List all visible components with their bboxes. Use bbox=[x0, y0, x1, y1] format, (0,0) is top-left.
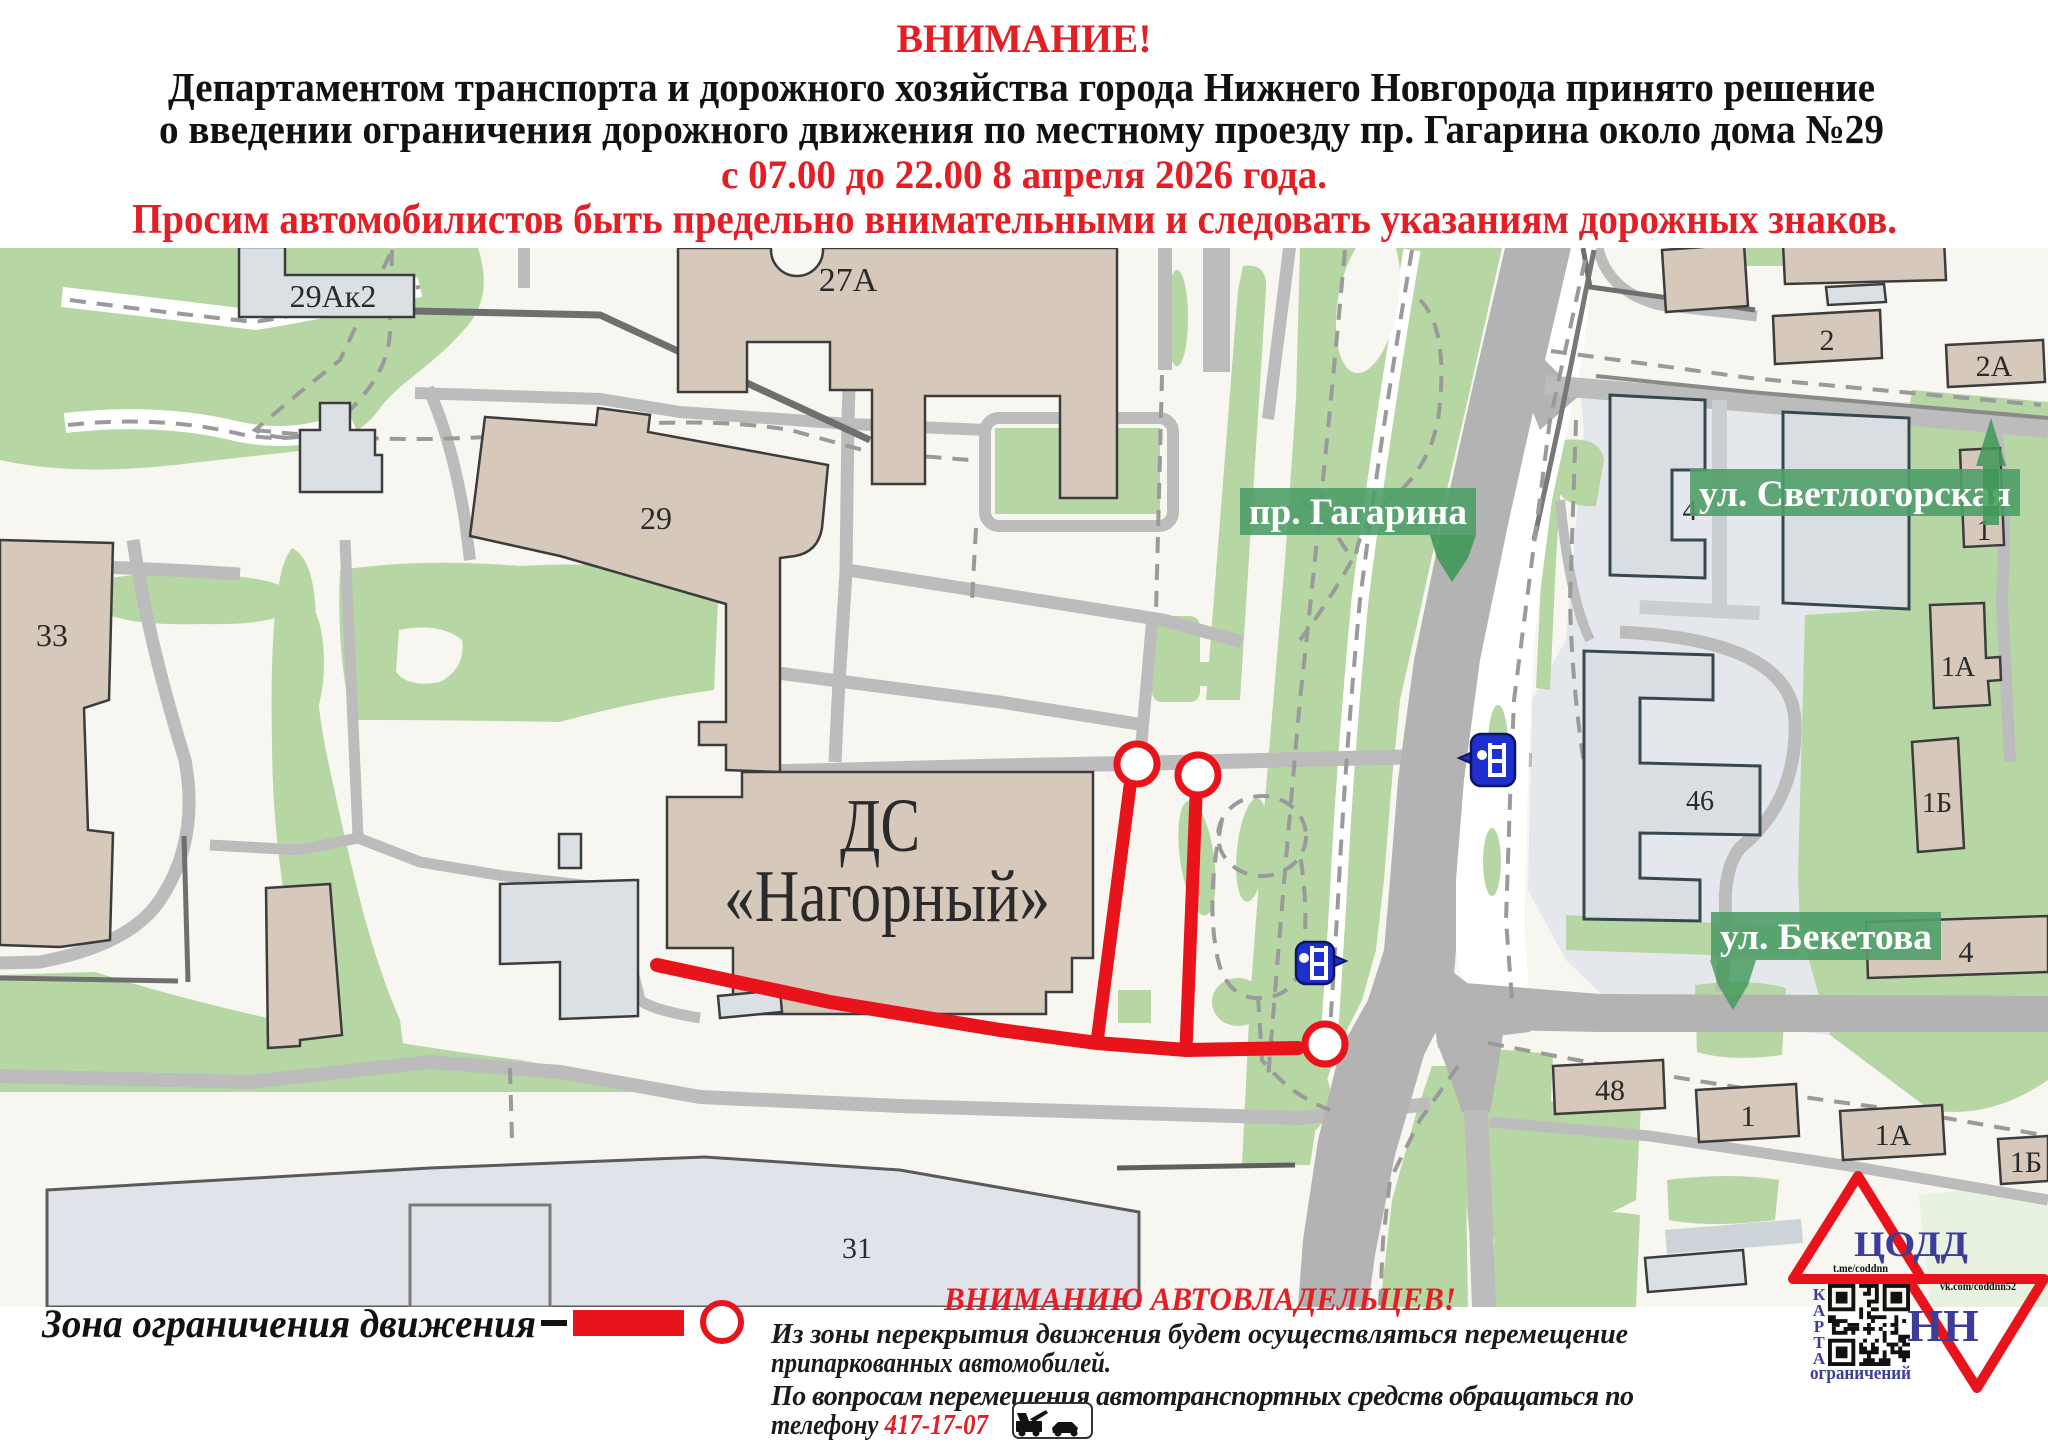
svg-text:1: 1 bbox=[1741, 1100, 1756, 1133]
svg-text:29: 29 bbox=[640, 500, 672, 536]
svg-text:t.me/coddnn: t.me/coddnn bbox=[1833, 1261, 1888, 1275]
svg-text:пр. Гагарина: пр. Гагарина bbox=[1249, 492, 1467, 533]
svg-text:НН: НН bbox=[1907, 1300, 1979, 1351]
svg-text:31: 31 bbox=[842, 1232, 872, 1265]
svg-text:46: 46 bbox=[1686, 786, 1714, 817]
svg-text:По вопросам перемещения автотр: По вопросам перемещения автотранспортных… bbox=[770, 1381, 1634, 1412]
svg-text:Департаментом транспорта и дор: Департаментом транспорта и дорожного хоз… bbox=[168, 64, 1875, 110]
svg-text:о введении ограничения дорожно: о введении ограничения дорожного движени… bbox=[159, 106, 1884, 152]
svg-text:vk.com/coddnn52: vk.com/coddnn52 bbox=[1940, 1279, 2016, 1293]
svg-text:ЦОДД: ЦОДД bbox=[1854, 1224, 1968, 1264]
svg-text:Зона ограничения движения: Зона ограничения движения bbox=[41, 1301, 536, 1346]
svg-text:ВНИМАНИЮ АВТОВЛАДЕЛЬЦЕВ!: ВНИМАНИЮ АВТОВЛАДЕЛЬЦЕВ! bbox=[943, 1282, 1456, 1318]
svg-text:с 07.00 до 22.00 8 апреля 2026: с 07.00 до 22.00 8 апреля 2026 года. bbox=[721, 152, 1327, 197]
svg-text:33: 33 bbox=[36, 617, 68, 653]
svg-text:1А: 1А bbox=[1941, 652, 1976, 683]
svg-text:2: 2 bbox=[1820, 324, 1835, 357]
svg-text:Просим автомобилистов быть пре: Просим автомобилистов быть предельно вни… bbox=[132, 197, 1897, 243]
svg-text:27А: 27А bbox=[819, 262, 878, 299]
svg-text:4: 4 bbox=[1959, 936, 1974, 969]
svg-text:ул. Светлогорская: ул. Светлогорская bbox=[1699, 474, 2011, 515]
svg-text:ул. Бекетова: ул. Бекетова bbox=[1720, 917, 1932, 958]
svg-text:29Ак2: 29Ак2 bbox=[290, 278, 377, 314]
svg-text:1А: 1А bbox=[1875, 1119, 1912, 1152]
svg-text:1Б: 1Б bbox=[2010, 1146, 2042, 1179]
svg-text:ВНИМАНИЕ!: ВНИМАНИЕ! bbox=[897, 16, 1152, 61]
svg-text:ограничений: ограничений bbox=[1810, 1363, 1911, 1384]
svg-text:1Б: 1Б bbox=[1922, 788, 1952, 819]
svg-text:телефону 417-17-07: телефону 417-17-07 bbox=[771, 1410, 989, 1441]
svg-text:«Нагорный»: «Нагорный» bbox=[724, 856, 1050, 938]
svg-text:припаркованных автомобилей.: припаркованных автомобилей. bbox=[771, 1348, 1111, 1379]
svg-text:2А: 2А bbox=[1976, 350, 2013, 383]
svg-text:48: 48 bbox=[1595, 1074, 1625, 1107]
svg-text:Из зоны перекрытия движения бу: Из зоны перекрытия движения будет осущес… bbox=[770, 1319, 1628, 1350]
